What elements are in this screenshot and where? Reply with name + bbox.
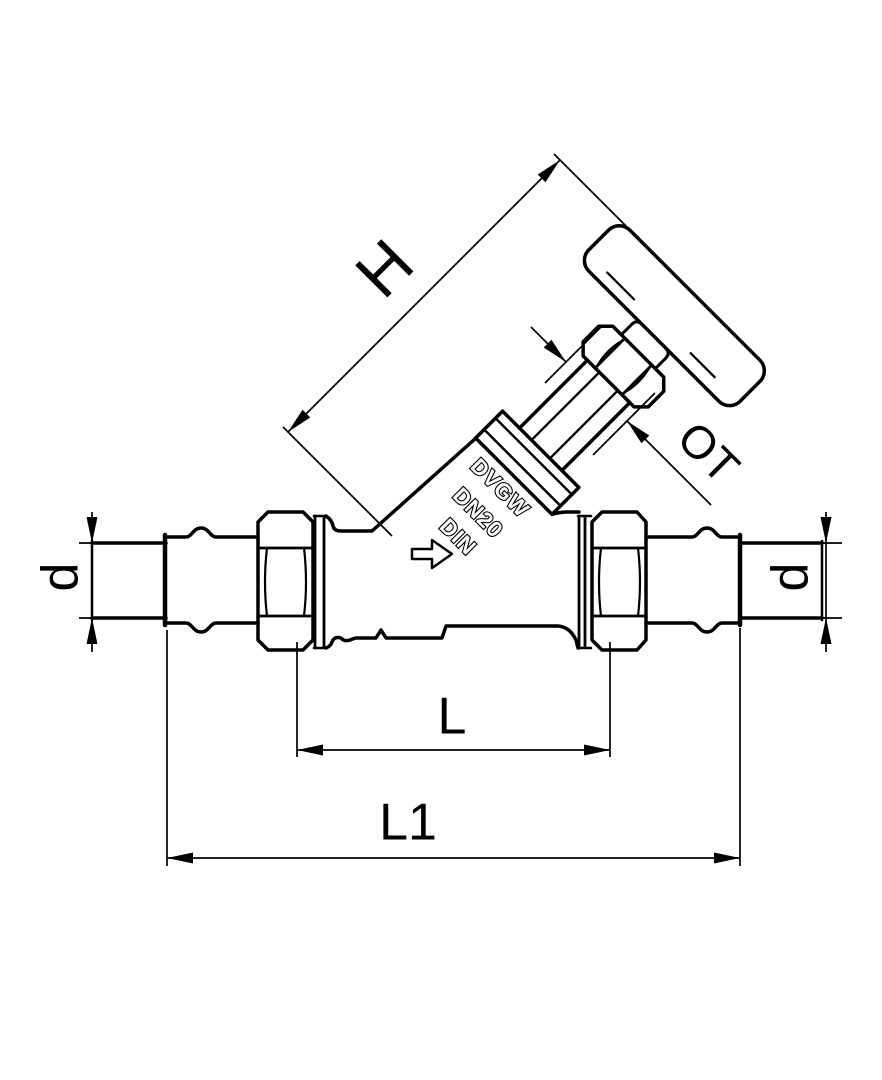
left-washer [314, 516, 326, 648]
handle [578, 219, 770, 411]
dim-label-l1: L1 [379, 794, 437, 852]
dim-label-d-left: d [32, 563, 90, 592]
right-press-socket [646, 528, 740, 632]
left-spigot [92, 541, 166, 620]
valve-technical-drawing: H OT d d L L1 DVGW DN20 DIN [0, 0, 882, 1080]
cast-markings: DVGW DN20 DIN [435, 453, 535, 560]
arrowhead [167, 853, 193, 864]
arrowhead [714, 853, 740, 864]
stem-neck [519, 360, 629, 470]
body-bottom-contour [326, 626, 578, 648]
arrowhead [584, 745, 610, 756]
arrowhead [297, 745, 323, 756]
body-right-shoulder [553, 512, 579, 514]
left-union-nut [258, 512, 313, 650]
dimension-ot [531, 327, 711, 505]
dim-label-ot: OT [668, 411, 750, 493]
left-press-socket [165, 528, 258, 632]
arrowhead [821, 618, 832, 644]
arrowhead [821, 517, 832, 543]
right-washer [578, 516, 591, 648]
dim-label-h: H [341, 225, 427, 311]
dim-label-l: L [438, 688, 467, 746]
dimension-l1 [167, 628, 740, 866]
drawing-sheet: H OT d d L L1 DVGW DN20 DIN [0, 0, 882, 1080]
right-union-nut [592, 512, 646, 650]
flow-direction-arrow-icon [412, 540, 452, 568]
arrowhead [87, 618, 98, 644]
bonnet-assembly [438, 219, 770, 551]
arrowhead [87, 517, 98, 543]
dim-label-d-right: d [762, 563, 820, 592]
